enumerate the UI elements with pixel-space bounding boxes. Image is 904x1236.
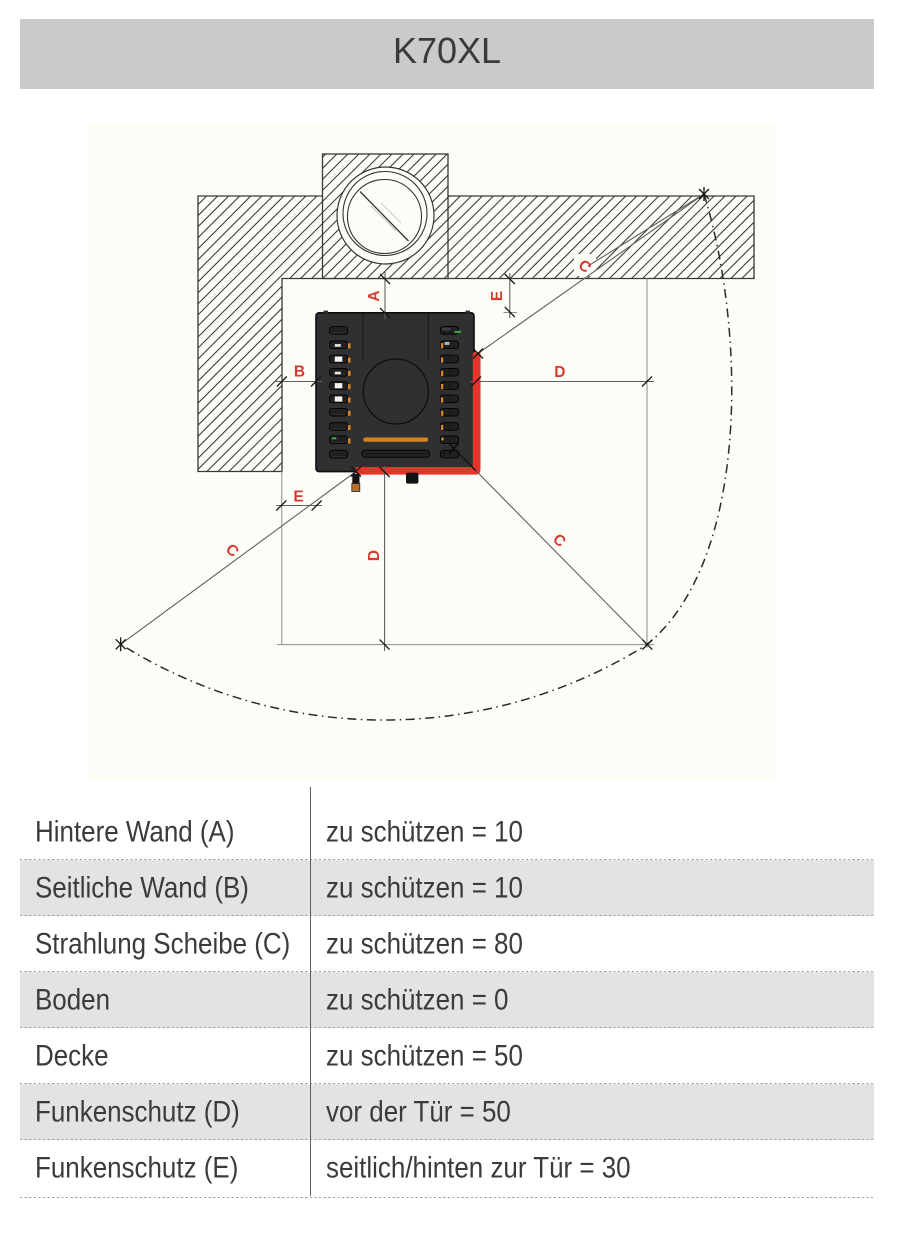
svg-text:A: A	[366, 290, 383, 301]
svg-text:E: E	[293, 489, 303, 506]
svg-text:D: D	[554, 364, 565, 381]
svg-text:B: B	[294, 363, 305, 380]
svg-text:E: E	[489, 291, 506, 301]
svg-text:D: D	[366, 550, 383, 561]
